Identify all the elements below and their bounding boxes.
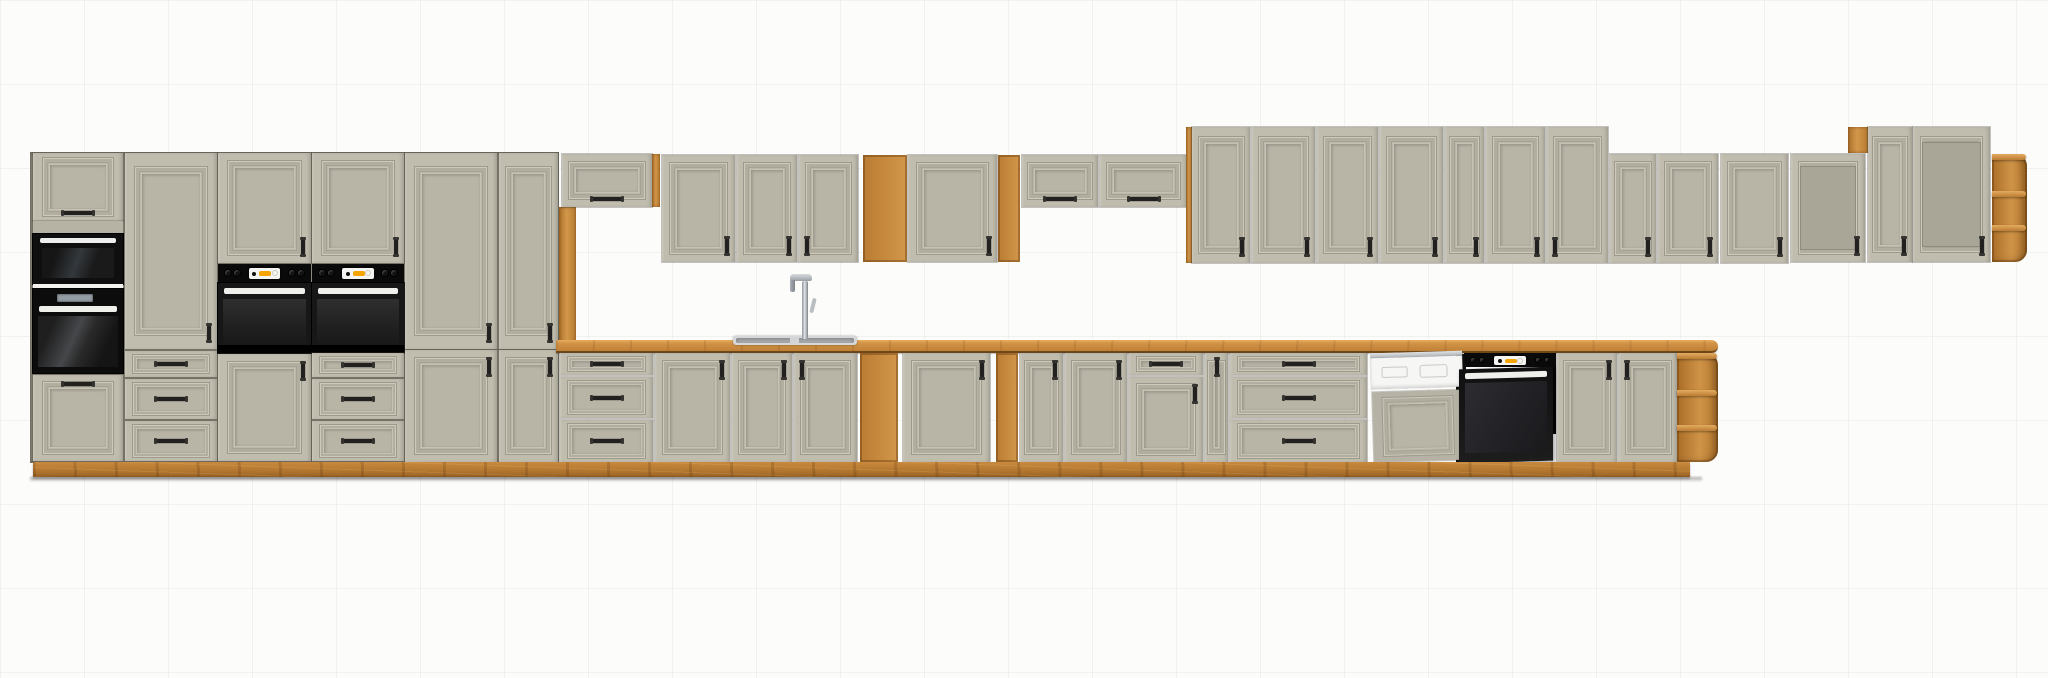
- wall-cabinet-door-part: [805, 162, 853, 255]
- faucet-part: [802, 281, 808, 339]
- built-in-oven-with-panel-part: [312, 264, 404, 283]
- wall-cabinet-door: [1610, 154, 1656, 263]
- base-cabinet-door-part: [911, 360, 982, 455]
- wall-cabinet-door-part: [1664, 161, 1713, 256]
- handle: [800, 362, 804, 378]
- handle: [1902, 238, 1906, 254]
- handle: [1129, 197, 1159, 201]
- faucet: [786, 274, 820, 340]
- wall-cabinet-door-part: [1323, 136, 1372, 254]
- faucet-part: [809, 298, 817, 314]
- built-in-oven-with-panel-part: [288, 269, 296, 277]
- built-in-oven-with-panel-part: [353, 271, 365, 276]
- wall-cabinet-door: [1380, 127, 1443, 263]
- wall-flip-cabinet-part: [1027, 162, 1092, 201]
- built-in-oven-with-panel: [312, 264, 404, 353]
- wall-cabinet-door: [1317, 127, 1378, 263]
- handle: [1284, 362, 1314, 366]
- handle: [1284, 439, 1314, 443]
- tall-cabinet-door-part: [227, 160, 302, 256]
- base-drawer: [125, 379, 217, 419]
- built-in-oven-with-panel-part: [390, 269, 398, 277]
- wall-cabinet-door: [662, 155, 735, 262]
- handle: [1646, 239, 1650, 255]
- wall-cabinet-door: [1252, 127, 1315, 263]
- base-drawer: [312, 421, 404, 461]
- wall-cabinet-door: [1721, 154, 1788, 263]
- dishwasher-part: [1370, 356, 1463, 390]
- tall-cabinet-door: [125, 153, 217, 349]
- wall-wine-rack: [998, 155, 1020, 262]
- wall-cabinet-door: [908, 155, 997, 262]
- base-drawer: [125, 351, 217, 377]
- microwave: [33, 234, 123, 284]
- wall-cabinet-door-part: [669, 162, 728, 255]
- wall-cabinet-door: [1547, 127, 1608, 263]
- handle: [782, 362, 786, 378]
- handle: [487, 325, 491, 341]
- base-drawer: [560, 353, 653, 375]
- built-under-oven-open-part: [1544, 357, 1550, 363]
- handle: [1368, 239, 1372, 255]
- countertop: [556, 340, 1718, 353]
- sink-base-door-part: [800, 360, 851, 455]
- built-in-oven-with-panel-part: [312, 283, 404, 353]
- handle: [487, 359, 491, 375]
- handle: [207, 325, 211, 341]
- handle: [1855, 238, 1859, 254]
- handle: [1117, 362, 1121, 378]
- base-drawer: [1230, 377, 1367, 418]
- microwave-part: [40, 238, 116, 243]
- handle: [156, 362, 186, 366]
- built-in-oven-part: [39, 306, 116, 312]
- base-cabinet-door: [903, 353, 990, 462]
- wall-flip-cabinet-part: [568, 161, 645, 200]
- wall-cabinet-door-part: [1727, 161, 1781, 256]
- handle: [1474, 239, 1478, 255]
- built-under-oven-open-part: [1470, 357, 1476, 363]
- handle: [1708, 239, 1712, 255]
- glass-display-cabinet: [1913, 127, 1990, 262]
- handle: [725, 238, 729, 254]
- tall-cabinet-filler: [33, 221, 123, 234]
- built-in-oven-with-panel-part: [272, 270, 278, 276]
- wall-cabinet-door: [1658, 154, 1718, 263]
- tall-cabinet-door-part: [321, 160, 396, 256]
- handle: [1193, 386, 1197, 402]
- wall-cabinet-door: [799, 155, 858, 262]
- handle: [592, 362, 622, 366]
- glass-display-cabinet: [1791, 154, 1865, 262]
- handle: [1433, 239, 1437, 255]
- wall-open-shelf-part: [868, 160, 902, 257]
- handle: [720, 362, 724, 378]
- base-wine-rack: [996, 353, 1018, 462]
- handle: [301, 363, 305, 379]
- built-in-oven-with-panel-part: [318, 288, 399, 294]
- handle: [805, 238, 809, 254]
- built-in-oven-part: [38, 316, 117, 367]
- handle: [980, 362, 984, 378]
- built-in-oven: [33, 289, 123, 373]
- handle: [343, 439, 373, 443]
- wall-corner-shelf-part: [1992, 225, 2026, 231]
- built-under-oven-open-part: [1479, 357, 1485, 363]
- base-cabinet-door: [1065, 353, 1127, 462]
- built-in-oven-with-panel-part: [218, 283, 311, 353]
- base-cabinet-door-part: [1625, 360, 1672, 455]
- handle: [1240, 239, 1244, 255]
- wall-cabinet-door-part: [1492, 136, 1540, 254]
- handle: [156, 397, 186, 401]
- built-under-oven-open-part: [1517, 358, 1523, 364]
- base-drawer: [125, 421, 217, 461]
- handle: [1284, 396, 1314, 400]
- faucet-part: [790, 280, 795, 292]
- tall-cabinet-door-part: [134, 166, 209, 337]
- base-drawer: [560, 377, 653, 418]
- built-under-oven-open-part: [1535, 357, 1541, 363]
- sink-base-door: [732, 353, 792, 462]
- handle: [548, 359, 552, 375]
- built-under-oven-open-part: [1494, 356, 1525, 365]
- handle: [1980, 238, 1984, 254]
- wall-corner-shelf-part: [1992, 191, 2026, 197]
- base-corner-shelf: [1677, 353, 1718, 462]
- tall-cabinet-door: [405, 153, 497, 349]
- oak-side-panel: [559, 207, 576, 343]
- built-under-oven-open-part: [1459, 367, 1553, 464]
- handle: [63, 211, 93, 215]
- handle: [1778, 239, 1782, 255]
- tall-cabinet-top-door: [33, 153, 123, 221]
- base-cabinet-door: [1619, 353, 1677, 462]
- tall-cabinet-bottom-door: [218, 354, 311, 461]
- dishwasher: [1370, 352, 1462, 462]
- wall-cabinet-door-part: [1386, 136, 1437, 254]
- built-in-oven-with-panel-part: [252, 272, 256, 276]
- built-under-oven-open-part: [1465, 371, 1548, 379]
- wall-cabinet-door-part: [916, 162, 988, 255]
- oak-side-panel: [652, 154, 660, 207]
- built-in-oven-part: [57, 294, 93, 302]
- built-under-oven-open-part: [1505, 359, 1517, 363]
- built-in-oven-with-panel-part: [249, 268, 281, 279]
- base-cabinet-door: [1557, 353, 1617, 462]
- wall-cabinet-door: [1192, 127, 1250, 263]
- base-corner-shelf-part: [1677, 425, 1717, 431]
- wall-wine-rack-part: [1002, 159, 1016, 258]
- tall-cabinet-bottom-door-part: [42, 381, 115, 456]
- wall-cabinet-door: [1868, 127, 1912, 262]
- base-open-shelf-part: [865, 358, 893, 457]
- kitchen-render: [0, 0, 2048, 678]
- built-in-oven-with-panel-part: [381, 269, 389, 277]
- wall-corner-shelf: [1992, 154, 2027, 262]
- tall-cabinet-bottom-door-part: [227, 361, 302, 454]
- base-drawer: [560, 420, 653, 462]
- built-under-oven-open-part: [1498, 359, 1502, 363]
- wall-cabinet-door-part: [1198, 136, 1245, 254]
- handle: [1053, 362, 1057, 378]
- built-in-oven-with-panel-part: [317, 299, 400, 344]
- dishwasher-part: [1372, 390, 1464, 463]
- built-in-oven-with-panel-part: [223, 299, 307, 344]
- handle: [1625, 362, 1629, 378]
- base-drawer: [312, 379, 404, 419]
- base-cabinet-door: [1020, 353, 1063, 462]
- wall-cabinet-door-part: [1553, 136, 1602, 254]
- base-open-shelf: [860, 353, 898, 462]
- tall-cabinet-bottom-door-part: [505, 357, 553, 454]
- tall-cabinet-door: [499, 153, 558, 349]
- base-cabinet-door: [1129, 377, 1203, 462]
- tall-cabinet-top-door-part: [42, 157, 115, 216]
- handle: [343, 397, 373, 401]
- handle: [343, 363, 373, 367]
- built-in-oven-with-panel-part: [218, 264, 311, 283]
- built-in-oven-with-panel-part: [327, 269, 335, 277]
- built-under-oven-open-part: [1465, 381, 1548, 453]
- built-in-oven-with-panel-part: [297, 269, 305, 277]
- built-in-oven-with-panel-part: [233, 269, 241, 277]
- base-corner-shelf-part: [1677, 390, 1717, 396]
- wall-cabinet-door-part: [1258, 136, 1309, 254]
- base-wine-rack-part: [1000, 357, 1014, 458]
- handle: [592, 197, 622, 201]
- wall-flip-cabinet: [1022, 155, 1098, 207]
- tall-cabinet-door-part: [505, 166, 553, 337]
- glass-display-cabinet-part: [1922, 142, 1981, 247]
- wall-open-shelf: [863, 155, 907, 262]
- built-in-oven-with-panel-part: [224, 288, 306, 294]
- handle: [1151, 362, 1181, 366]
- wall-flip-cabinet: [562, 154, 652, 207]
- built-in-oven-with-panel-part: [365, 270, 371, 276]
- wall-cabinet-door-part: [743, 162, 792, 255]
- handle: [394, 239, 398, 255]
- base-corner-shelf-part: [1677, 353, 1717, 359]
- base-drawer: [1230, 353, 1367, 375]
- wall-flip-cabinet: [1100, 155, 1187, 207]
- tall-cabinet-door: [312, 153, 404, 263]
- tall-cabinet-door-part: [414, 166, 489, 337]
- base-drawer: [312, 353, 404, 377]
- built-under-oven-open-part: [1464, 353, 1556, 367]
- wall-corner-shelf-part: [1992, 154, 2026, 160]
- handle: [1215, 359, 1219, 375]
- handle: [1607, 362, 1611, 378]
- built-in-oven-with-panel-part: [342, 268, 373, 279]
- handle: [592, 439, 622, 443]
- base-cabinet-door-part: [1563, 360, 1612, 455]
- built-in-oven-with-panel-part: [218, 345, 311, 353]
- tall-cabinet-bottom-door-part: [414, 357, 489, 454]
- handle: [1305, 239, 1309, 255]
- oak-open-box: [1848, 127, 1868, 153]
- handle: [63, 382, 93, 386]
- wall-flip-cabinet-part: [1106, 162, 1181, 201]
- handle: [787, 238, 791, 254]
- built-in-oven-with-panel-part: [318, 269, 326, 277]
- dishwasher-part: [1370, 351, 1465, 464]
- built-in-oven-with-panel-part: [346, 272, 350, 276]
- base-cabinet-door-part: [662, 360, 723, 455]
- base-cabinet-door-part: [1136, 383, 1196, 457]
- narrow-base-door: [1205, 353, 1228, 462]
- base-drawer: [1230, 420, 1367, 462]
- handle: [301, 239, 305, 255]
- base-cabinet-door-part: [1071, 360, 1121, 455]
- tall-cabinet-bottom-door: [405, 350, 497, 462]
- wall-cabinet-door: [1486, 127, 1545, 263]
- base-drawer: [1129, 353, 1203, 375]
- wall-cabinet-door: [1445, 127, 1484, 263]
- handle: [987, 238, 991, 254]
- sink-base-door: [794, 353, 857, 462]
- handle: [1535, 239, 1539, 255]
- handle: [1553, 239, 1557, 255]
- base-cabinet-door: [655, 353, 730, 462]
- handle: [548, 325, 552, 341]
- built-in-oven-with-panel-part: [224, 269, 232, 277]
- floor-shadow: [30, 477, 1702, 482]
- built-under-oven-open: [1464, 353, 1556, 462]
- microwave-part: [42, 248, 114, 278]
- built-in-oven-with-panel: [218, 264, 311, 353]
- sink-base-door-part: [738, 360, 787, 455]
- built-in-oven-with-panel-part: [259, 271, 271, 276]
- handle: [1045, 197, 1075, 201]
- wall-cabinet-door: [737, 155, 797, 262]
- tall-cabinet-bottom-door: [499, 350, 558, 462]
- handle: [592, 396, 622, 400]
- plinth: [33, 462, 1690, 477]
- dishwasher-part: [1381, 394, 1456, 457]
- tall-cabinet-bottom-door: [33, 375, 123, 461]
- tall-cabinet-door: [218, 153, 311, 263]
- handle: [156, 439, 186, 443]
- built-in-oven-with-panel-part: [312, 345, 404, 353]
- glass-display-cabinet-part: [1800, 166, 1856, 250]
